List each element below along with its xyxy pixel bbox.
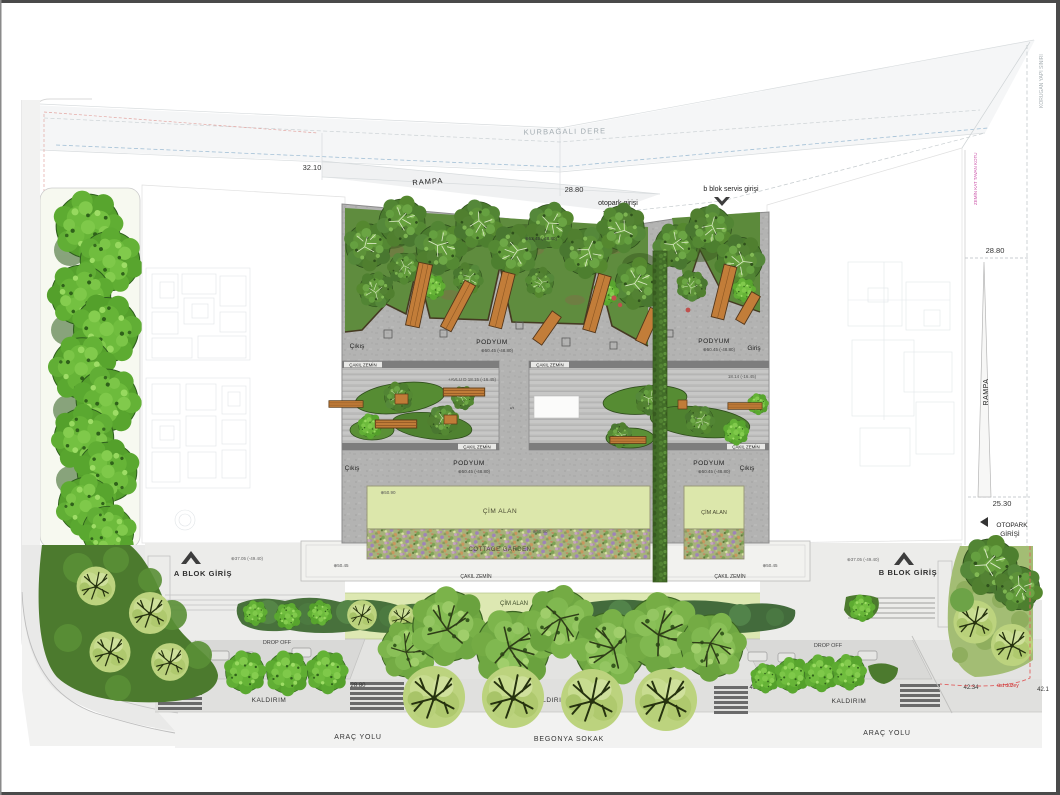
svg-text:COTTAGE GARDEN: COTTAGE GARDEN	[469, 547, 532, 553]
svg-text:RAMPA: RAMPA	[983, 379, 990, 406]
svg-text:Çıkış: Çıkış	[345, 465, 361, 472]
svg-text:OTOPARK: OTOPARK	[996, 522, 1028, 529]
svg-text:ÇAKIL ZEMİN: ÇAKIL ZEMİN	[714, 573, 746, 580]
svg-text:⊕52.45 (-48.80): ⊕52.45 (-48.80)	[525, 236, 558, 241]
svg-text:KORUGAN YAPI SINIRI: KORUGAN YAPI SINIRI	[1039, 54, 1045, 108]
svg-text:⊕50.45 (-48.80): ⊕50.45 (-48.80)	[481, 348, 514, 353]
svg-text:⊕50.90: ⊕50.90	[532, 529, 548, 534]
svg-text:KALDIRIM: KALDIRIM	[252, 697, 287, 704]
svg-text:⊕50.45: ⊕50.45	[333, 563, 349, 568]
svg-text:b blok servis girişi: b blok servis girişi	[703, 186, 759, 193]
svg-text:A BLOK GİRİŞ: A BLOK GİRİŞ	[174, 569, 232, 578]
svg-text:ÇAKIL ZEMİN: ÇAKIL ZEMİN	[460, 573, 492, 580]
svg-text:5: 5	[510, 406, 516, 409]
svg-text:Giriş: Giriş	[747, 345, 761, 352]
svg-text:Çıkış: Çıkış	[740, 465, 756, 472]
svg-text:üst düzey: üst düzey	[997, 683, 1019, 689]
svg-text:28.80: 28.80	[565, 185, 584, 194]
svg-text:32.10: 32.10	[303, 163, 322, 172]
svg-text:DROP OFF: DROP OFF	[263, 640, 292, 646]
svg-text:BEGONYA SOKAK: BEGONYA SOKAK	[534, 736, 604, 743]
svg-text:KALDIRIM: KALDIRIM	[832, 698, 867, 705]
svg-text:⊕50.45: ⊕50.45	[762, 563, 778, 568]
svg-text:PODYUM: PODYUM	[693, 460, 725, 467]
svg-text:28.80: 28.80	[350, 683, 366, 689]
svg-text:ARAÇ YOLU: ARAÇ YOLU	[863, 730, 911, 737]
svg-text:⊕50.45 (-48.80): ⊕50.45 (-48.80)	[458, 469, 491, 474]
svg-text:ARAÇ YOLU: ARAÇ YOLU	[334, 734, 382, 741]
svg-text:25.30: 25.30	[993, 499, 1012, 508]
svg-text:⊕37.05 (-49.40): ⊕37.05 (-49.40)	[231, 556, 264, 561]
svg-text:⊕50.90: ⊕50.90	[380, 490, 396, 495]
svg-text:B BLOK GİRİŞ: B BLOK GİRİŞ	[879, 568, 937, 577]
svg-text:ÇAKIL ZEMİN: ÇAKIL ZEMİN	[536, 363, 563, 368]
svg-text:DROP OFF: DROP OFF	[814, 643, 843, 649]
svg-text:PODYUM: PODYUM	[698, 338, 730, 345]
svg-text:⊕50.45 (-48.80): ⊕50.45 (-48.80)	[698, 469, 731, 474]
svg-text:PODYUM: PODYUM	[476, 339, 508, 346]
svg-text:ÇİM ALAN: ÇİM ALAN	[701, 509, 727, 516]
svg-text:⊕50.45 (-48.80): ⊕50.45 (-48.80)	[703, 347, 736, 352]
svg-text:ÇİM ALAN: ÇİM ALAN	[483, 506, 517, 515]
svg-text:28.80: 28.80	[986, 246, 1005, 255]
svg-text:ÇAKIL ZEMİN: ÇAKIL ZEMİN	[463, 445, 490, 450]
svg-text:+AVLU D 18.15 (-16.45): +AVLU D 18.15 (-16.45)	[448, 377, 497, 382]
svg-text:ÇİM ALAN: ÇİM ALAN	[500, 600, 528, 607]
svg-text:GİRİŞİ: GİRİŞİ	[1000, 529, 1020, 538]
svg-text:ÇAKIL ZEMİN: ÇAKIL ZEMİN	[349, 363, 376, 368]
svg-text:ZEMİN KAT TAVAN KOTU: ZEMİN KAT TAVAN KOTU	[972, 152, 978, 205]
svg-text:KURBAĞALI DERE: KURBAĞALI DERE	[524, 126, 607, 136]
svg-text:42.1: 42.1	[1037, 687, 1049, 693]
svg-text:⊕37.05 (-49.40): ⊕37.05 (-49.40)	[847, 557, 880, 562]
svg-text:Çıkış: Çıkış	[350, 343, 366, 350]
svg-text:18.14 (-16.45): 18.14 (-16.45)	[728, 374, 757, 379]
svg-text:PODYUM: PODYUM	[453, 460, 485, 467]
